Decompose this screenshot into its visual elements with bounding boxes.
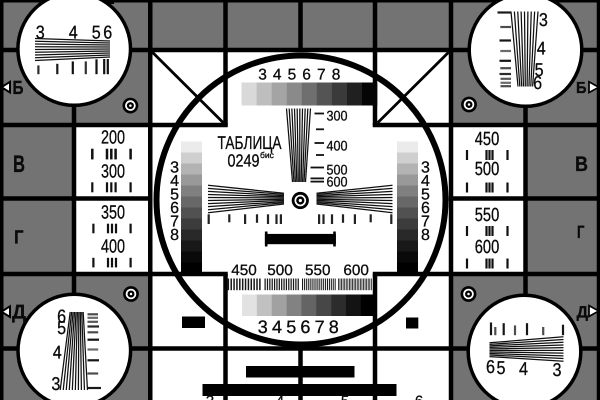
svg-text:4: 4 — [537, 38, 546, 59]
svg-text:300: 300 — [327, 107, 348, 123]
svg-text:3: 3 — [206, 393, 214, 400]
svg-text:3: 3 — [258, 67, 267, 84]
svg-text:Б: Б — [576, 80, 587, 97]
svg-text:600: 600 — [343, 262, 369, 279]
svg-text:7: 7 — [317, 67, 326, 84]
svg-text:550: 550 — [475, 205, 500, 226]
svg-text:5: 5 — [57, 317, 66, 338]
svg-text:3: 3 — [258, 317, 268, 337]
svg-text:7: 7 — [315, 317, 325, 337]
svg-text:600: 600 — [327, 174, 348, 190]
svg-text:5: 5 — [286, 317, 296, 337]
svg-text:Б: Б — [13, 78, 24, 99]
svg-text:8: 8 — [170, 227, 179, 244]
svg-text:3: 3 — [539, 9, 548, 30]
svg-text:Г: Г — [14, 228, 24, 249]
svg-text:3: 3 — [553, 359, 562, 380]
svg-text:400: 400 — [101, 236, 125, 257]
svg-text:4: 4 — [276, 393, 284, 400]
svg-text:6: 6 — [103, 22, 112, 43]
svg-text:4: 4 — [273, 67, 282, 84]
svg-text:500: 500 — [267, 262, 293, 279]
svg-text:4: 4 — [53, 341, 62, 362]
svg-text:4: 4 — [519, 358, 528, 379]
svg-text:3: 3 — [36, 22, 45, 43]
svg-text:5: 5 — [497, 357, 506, 378]
svg-text:3: 3 — [51, 373, 60, 394]
svg-text:600: 600 — [475, 237, 500, 258]
svg-text:6: 6 — [415, 393, 423, 400]
svg-text:8: 8 — [421, 227, 430, 244]
svg-text:5: 5 — [92, 22, 101, 43]
svg-text:400: 400 — [327, 138, 348, 154]
svg-text:8: 8 — [332, 67, 341, 84]
svg-text:В: В — [13, 151, 25, 178]
svg-text:300: 300 — [101, 161, 125, 182]
svg-text:5: 5 — [341, 393, 349, 400]
svg-text:Д: Д — [12, 302, 26, 324]
svg-text:550: 550 — [305, 262, 331, 279]
svg-text:6: 6 — [533, 72, 542, 93]
svg-text:4: 4 — [272, 317, 282, 337]
svg-text:5: 5 — [288, 67, 297, 84]
svg-text:0249: 0249 — [228, 151, 260, 171]
svg-text:бис: бис — [260, 150, 275, 160]
svg-text:Г: Г — [577, 222, 585, 242]
svg-text:4: 4 — [69, 22, 78, 43]
svg-text:В: В — [575, 153, 588, 176]
svg-text:Д: Д — [577, 304, 589, 322]
svg-text:6: 6 — [302, 67, 311, 84]
svg-text:350: 350 — [101, 202, 125, 223]
svg-text:450: 450 — [475, 129, 500, 150]
svg-text:500: 500 — [475, 159, 500, 180]
svg-text:450: 450 — [231, 262, 257, 279]
svg-text:6: 6 — [486, 356, 495, 377]
svg-text:6: 6 — [300, 317, 310, 337]
svg-text:8: 8 — [329, 317, 339, 337]
svg-text:200: 200 — [101, 127, 125, 148]
